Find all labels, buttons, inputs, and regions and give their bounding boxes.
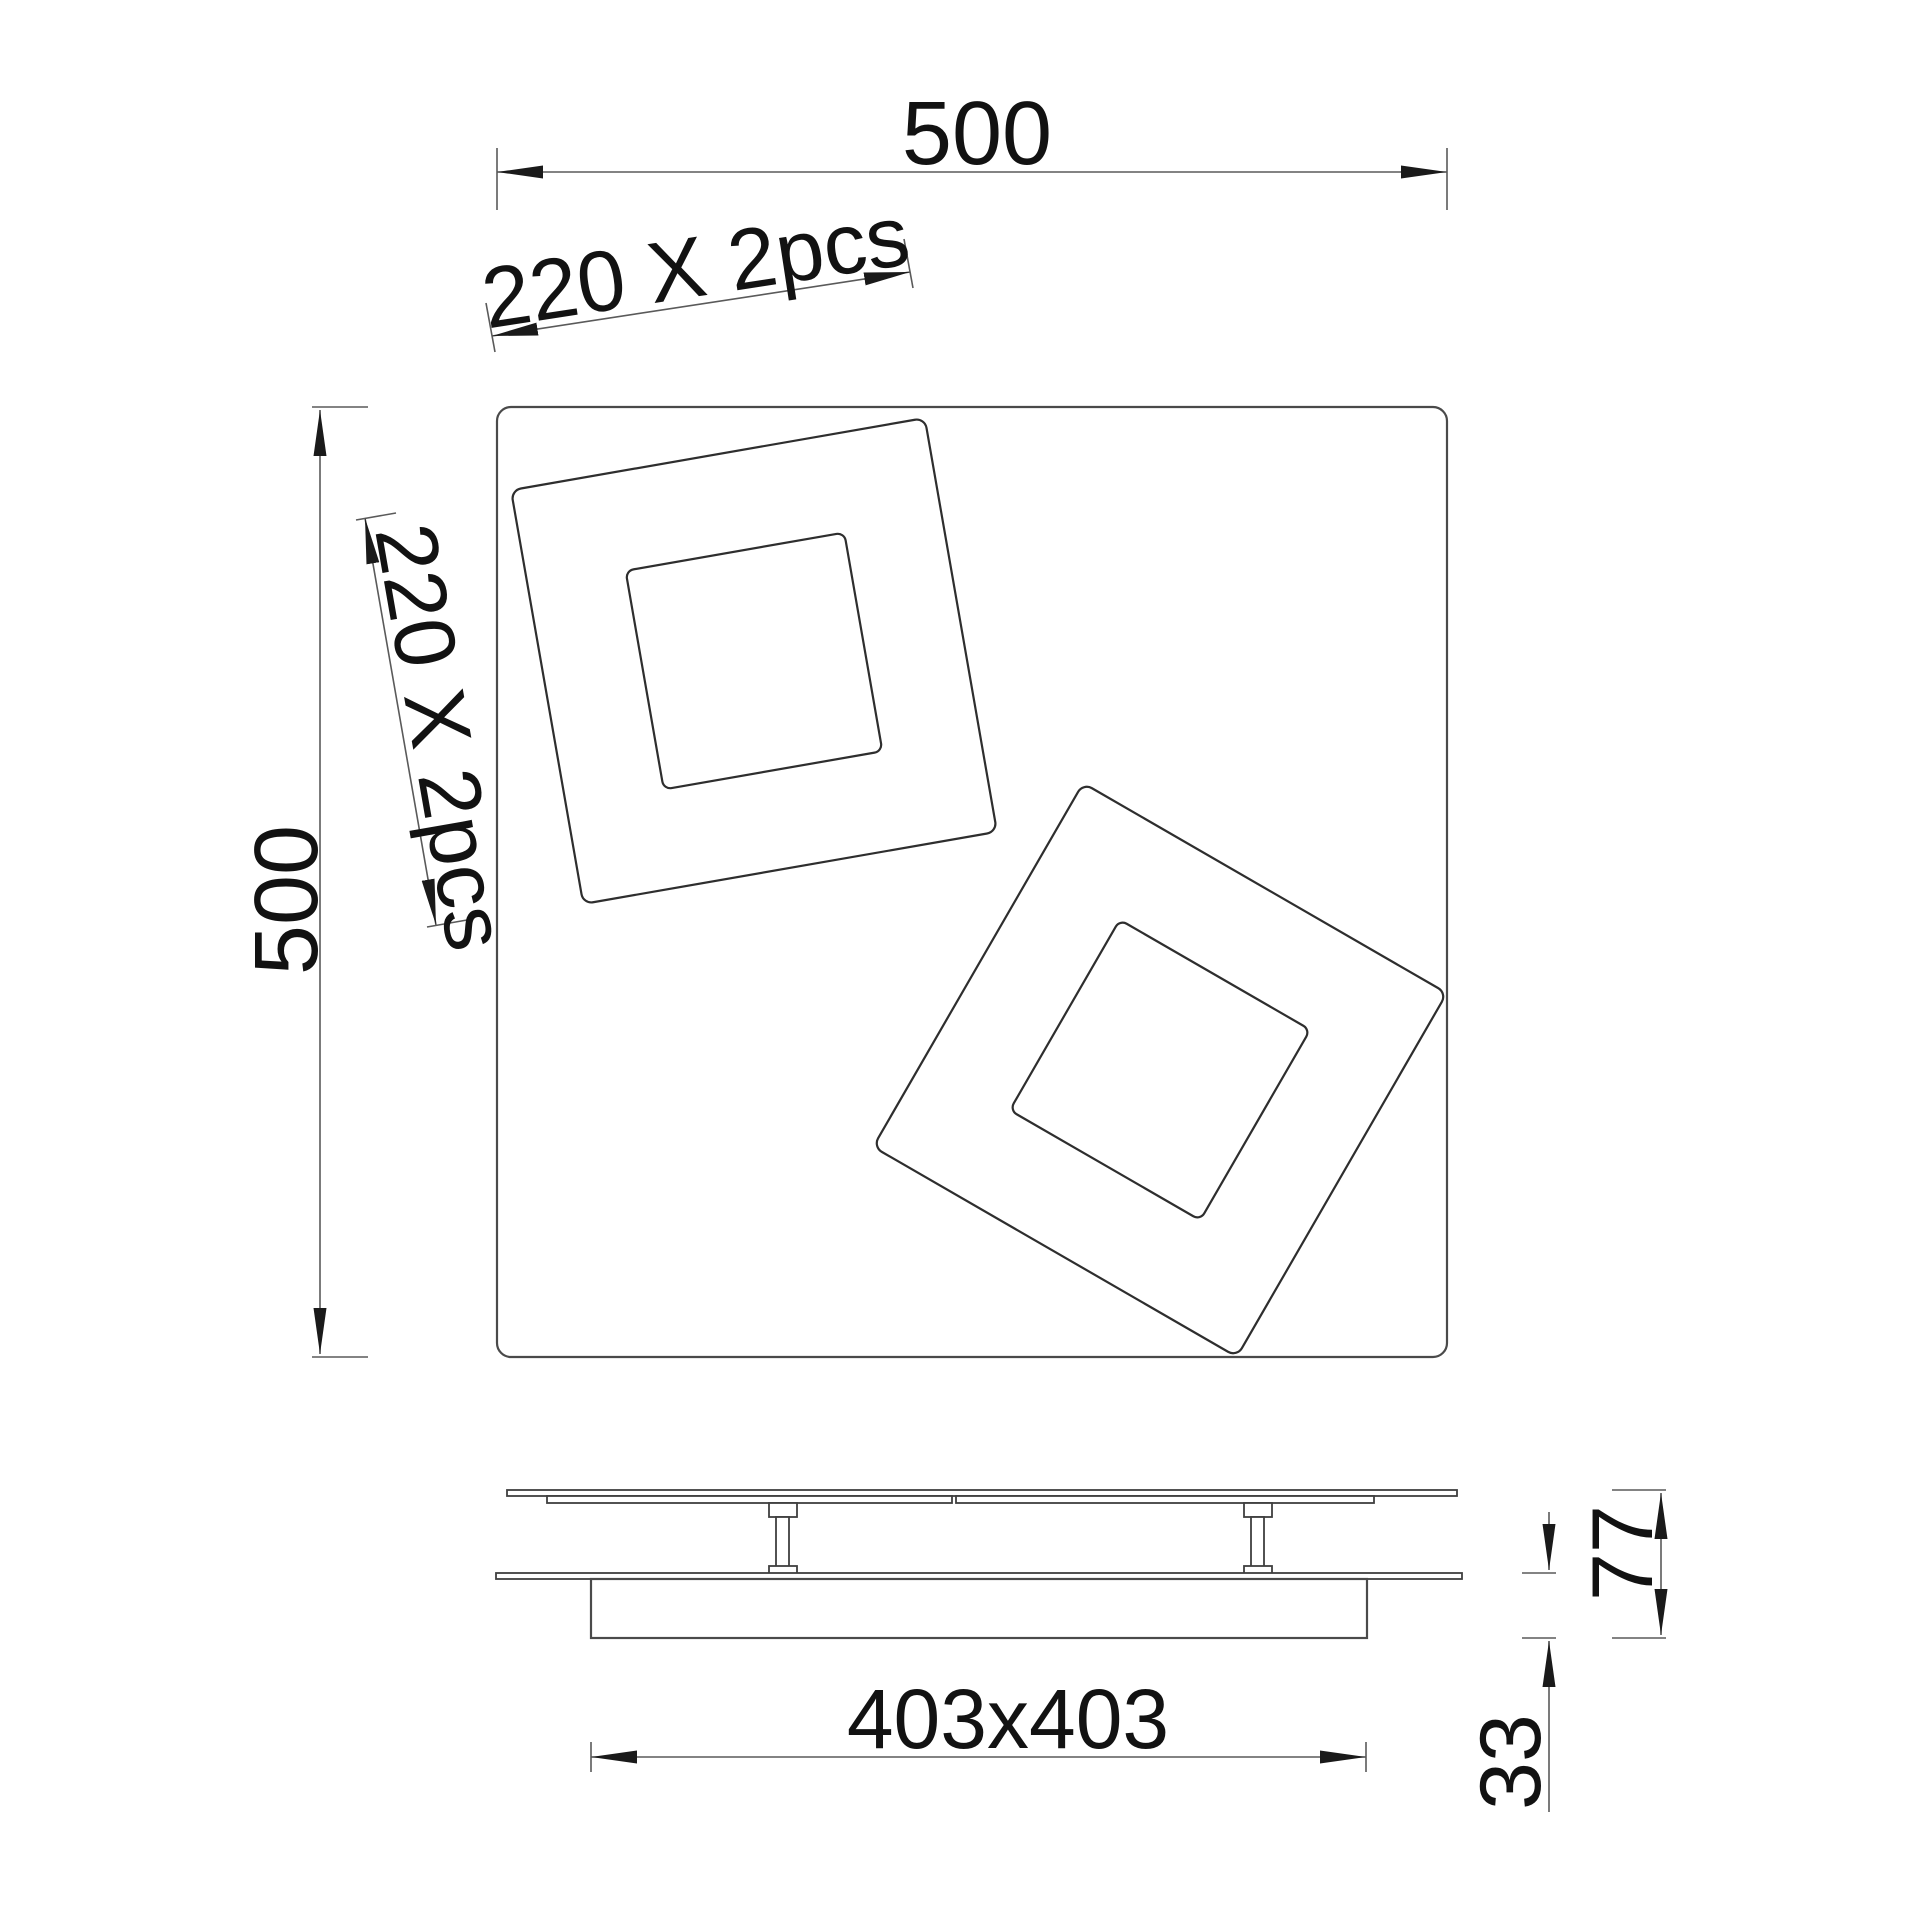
dim-total-height: 77 <box>1575 1490 1671 1638</box>
total-height-label: 77 <box>1575 1505 1671 1601</box>
panel-width-label: 500 <box>902 84 1052 184</box>
technical-drawing: 500 500 220 X 2pcs 220 X 2pcs <box>0 0 1920 1920</box>
canopy-height-label: 33 <box>1463 1714 1559 1810</box>
side-canopy-box <box>591 1579 1367 1638</box>
dim-panel-width: 500 <box>497 84 1447 210</box>
dim-tile-width: 220 X 2pcs <box>476 187 916 352</box>
tile-1 <box>511 418 997 904</box>
stem-flange-top <box>769 1503 797 1517</box>
plan-view: 500 500 220 X 2pcs 220 X 2pcs <box>237 84 1447 1357</box>
stem-shaft <box>1251 1517 1264 1567</box>
side-panel-bar <box>507 1490 1457 1496</box>
stem-shaft <box>776 1517 789 1567</box>
side-view: 403x403 77 33 <box>496 1490 1671 1812</box>
dim-canopy-height: 33 <box>1463 1512 1559 1812</box>
dim-canopy-width: 403x403 <box>591 1672 1366 1772</box>
tile-1-inner <box>626 533 883 790</box>
side-stem-left <box>769 1503 797 1574</box>
stem-flange-top <box>1244 1503 1272 1517</box>
panel-height-label: 500 <box>237 825 337 975</box>
side-stem-right <box>1244 1503 1272 1574</box>
dim-panel-height: 500 <box>237 407 368 1357</box>
canopy-size-label: 403x403 <box>847 1672 1169 1766</box>
extension-tick <box>356 513 396 520</box>
tile-width-label: 220 X 2pcs <box>476 187 916 347</box>
side-tile-bar-left <box>547 1496 952 1503</box>
side-tile-bar-right <box>956 1496 1374 1503</box>
